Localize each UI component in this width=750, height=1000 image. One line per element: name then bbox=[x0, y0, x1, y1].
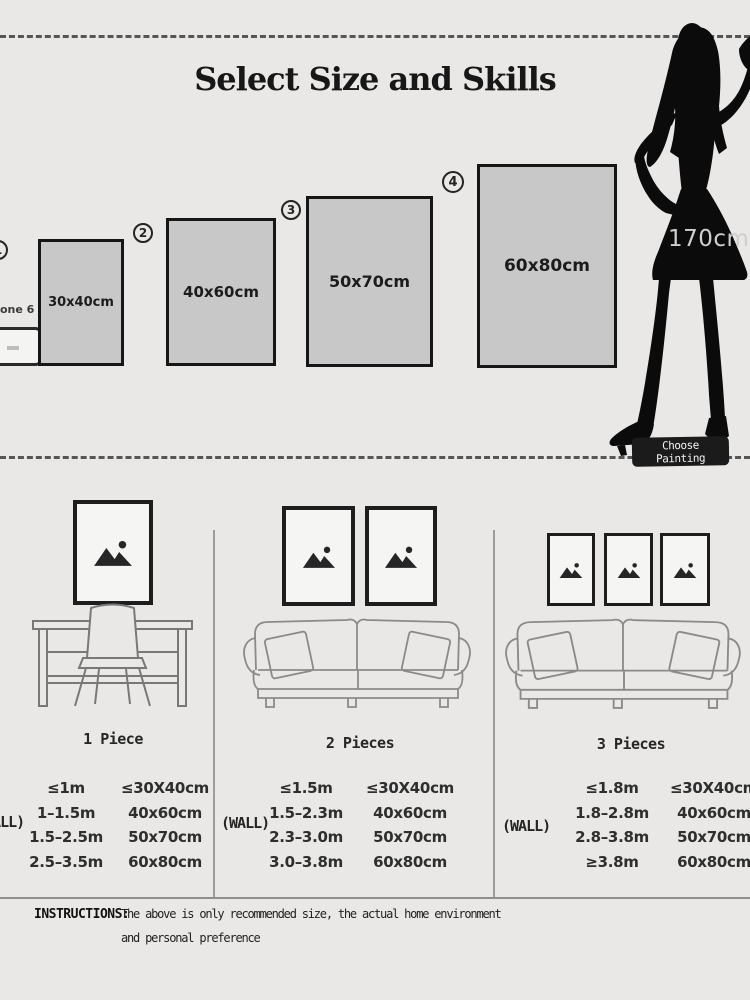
table-row: 1–1.5m 40x60cm bbox=[24, 801, 218, 826]
size-table-3: ≤1.8m ≤30X40cm 1.8–2.8m 40x60cm 2.8–3.8m… bbox=[566, 776, 750, 874]
recommended-size: 50x70cm bbox=[354, 828, 466, 846]
image-placeholder-icon bbox=[302, 544, 336, 569]
wall-distance: 2.5–3.5m bbox=[24, 853, 108, 871]
wall-distance: 2.8–3.8m bbox=[566, 828, 658, 846]
table-row: ≥3.8m 60x80cm bbox=[566, 850, 750, 875]
recommended-size: 50x70cm bbox=[112, 828, 218, 846]
recommended-size: ≤30X40cm bbox=[112, 779, 218, 797]
recommended-size: 60x80cm bbox=[354, 853, 466, 871]
table-row: 3.0–3.8m 60x80cm bbox=[262, 850, 466, 875]
table-row: ≤1m ≤30X40cm bbox=[24, 776, 218, 801]
table-row: 2.5–3.5m 60x80cm bbox=[24, 850, 218, 875]
phone-screen-line bbox=[7, 346, 19, 350]
table-row: 2.8–3.8m 50x70cm bbox=[566, 825, 750, 850]
scene-3-label: 3 Pieces bbox=[597, 735, 665, 753]
wall-distance: ≤1.8m bbox=[566, 779, 658, 797]
size-number-4: 4 bbox=[442, 171, 464, 193]
wall-distance: 2.3–3.0m bbox=[262, 828, 350, 846]
recommended-size: 60x80cm bbox=[664, 853, 750, 871]
wall-distance: 1.5–2.5m bbox=[24, 828, 108, 846]
wall-distance: ≥3.8m bbox=[566, 853, 658, 871]
figure-height-label: 170cm bbox=[668, 226, 749, 252]
desk-and-chair-drawing bbox=[30, 598, 195, 713]
phone-size-label: one 6 bbox=[0, 303, 34, 316]
wall-label: (WALL) bbox=[502, 817, 550, 835]
size-option-30x40[interactable]: 30x40cm bbox=[38, 239, 124, 366]
size-option-label: 60x80cm bbox=[504, 256, 590, 276]
size-guide-infographic: Select Size and Skills 1 one 6 30x40cm 2… bbox=[0, 0, 750, 1000]
size-number-2: 2 bbox=[133, 223, 153, 243]
scene-2-label: 2 Pieces bbox=[326, 734, 394, 752]
choose-painting-button[interactable]: Choose Painting bbox=[632, 436, 729, 467]
size-option-label: 30x40cm bbox=[48, 295, 114, 310]
wall-distance: 1.5–2.3m bbox=[262, 804, 350, 822]
size-option-label: 50x70cm bbox=[329, 272, 410, 291]
recommended-size: ≤30X40cm bbox=[354, 779, 466, 797]
size-number-1: 1 bbox=[0, 240, 8, 260]
size-option-label: 40x60cm bbox=[183, 283, 259, 301]
size-option-50x70[interactable]: 50x70cm bbox=[306, 196, 433, 367]
size-table-2: ≤1.5m ≤30X40cm 1.5–2.3m 40x60cm 2.3–3.0m… bbox=[262, 776, 466, 874]
wall-distance: ≤1.5m bbox=[262, 779, 350, 797]
sofa-drawing bbox=[242, 608, 474, 710]
size-option-60x80[interactable]: 60x80cm bbox=[477, 164, 617, 368]
wall-distance: 1.8–2.8m bbox=[566, 804, 658, 822]
instructions-label: INSTRUCTIONS: bbox=[34, 907, 129, 922]
wall-distance: 1–1.5m bbox=[24, 804, 108, 822]
wall-art-frame bbox=[604, 533, 653, 606]
table-row: 1.5–2.5m 50x70cm bbox=[24, 825, 218, 850]
recommended-size: 40x60cm bbox=[354, 804, 466, 822]
divider-horizontal bbox=[0, 897, 750, 899]
wall-art-frame bbox=[547, 533, 595, 606]
image-placeholder-icon bbox=[384, 544, 418, 569]
recommended-size: 50x70cm bbox=[664, 828, 750, 846]
wall-distance: ≤1m bbox=[24, 779, 108, 797]
image-placeholder-icon bbox=[617, 561, 641, 579]
size-table-1: ≤1m ≤30X40cm 1–1.5m 40x60cm 1.5–2.5m 50x… bbox=[24, 776, 218, 874]
wall-art-frame bbox=[73, 500, 153, 605]
recommended-size: 40x60cm bbox=[112, 804, 218, 822]
table-row: ≤1.5m ≤30X40cm bbox=[262, 776, 466, 801]
instructions-line-1: The above is only recommended size, the … bbox=[121, 907, 501, 921]
divider-vertical-2 bbox=[493, 530, 495, 897]
recommended-size: ≤30X40cm bbox=[664, 779, 750, 797]
image-placeholder-icon bbox=[559, 561, 583, 579]
recommended-size: 40x60cm bbox=[664, 804, 750, 822]
table-row: 1.8–2.8m 40x60cm bbox=[566, 801, 750, 826]
wall-distance: 3.0–3.8m bbox=[262, 853, 350, 871]
table-row: ≤1.8m ≤30X40cm bbox=[566, 776, 750, 801]
wall-art-frame bbox=[282, 506, 355, 606]
sofa-drawing bbox=[504, 608, 744, 711]
instructions-line-2: and personal preference bbox=[121, 931, 260, 945]
table-row: 1.5–2.3m 40x60cm bbox=[262, 801, 466, 826]
size-option-40x60[interactable]: 40x60cm bbox=[166, 218, 276, 366]
table-row: 2.3–3.0m 50x70cm bbox=[262, 825, 466, 850]
wall-art-frame bbox=[365, 506, 437, 606]
wall-label: (WALL) bbox=[0, 813, 24, 831]
image-placeholder-icon bbox=[673, 561, 697, 579]
size-number-3: 3 bbox=[281, 200, 301, 220]
recommended-size: 60x80cm bbox=[112, 853, 218, 871]
wall-art-frame bbox=[660, 533, 710, 606]
image-placeholder-icon bbox=[93, 538, 133, 567]
scene-1-label: 1 Piece bbox=[83, 730, 143, 748]
